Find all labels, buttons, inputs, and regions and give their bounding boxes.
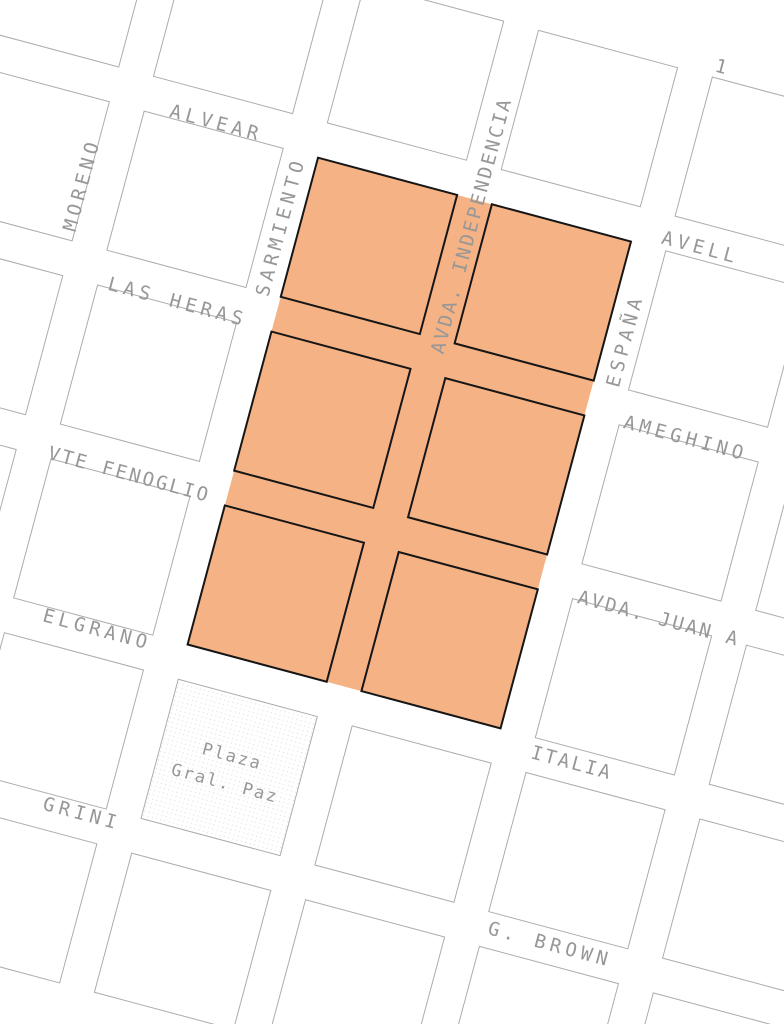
city-block [0, 0, 156, 67]
street-label-ameghino: AMEGHINO [621, 411, 750, 465]
city-block [315, 726, 491, 902]
city-block [0, 238, 63, 414]
city-block [153, 0, 329, 114]
city-block [663, 819, 784, 995]
street-label-g-brown: G. BROWN [486, 917, 615, 971]
city-block [0, 807, 97, 983]
city-block [675, 77, 784, 253]
map-page: ALVEAR AVELL 1 LAS HERAS AMEGHINO VTE FE… [0, 0, 784, 1024]
city-block [94, 853, 270, 1024]
city-block [616, 993, 784, 1024]
plaza-block [141, 679, 317, 855]
city-map-drawing: ALVEAR AVELL 1 LAS HERAS AMEGHINO VTE FE… [0, 0, 784, 1024]
street-label-las-heras: LAS HERAS [105, 273, 249, 331]
street-label-moreno: MORENO [59, 136, 105, 234]
street-label-pellegrini-partial: GRINI [41, 793, 124, 835]
street-label-avellaneda-partial: AVELL [659, 227, 742, 269]
city-block [327, 0, 503, 160]
street-label-avda-juan: AVDA. JUAN A [575, 586, 742, 651]
city-block [628, 251, 784, 427]
street-label-alvear: ALVEAR [167, 100, 265, 146]
city-block [0, 633, 143, 809]
city-block [709, 645, 784, 821]
city-block [501, 30, 677, 206]
street-label-vte-fenoglio: VTE FENOGLIO [46, 442, 213, 507]
city-block [489, 772, 665, 948]
map-grid: ALVEAR AVELL 1 LAS HERAS AMEGHINO VTE FE… [0, 0, 784, 1024]
city-block [756, 471, 784, 647]
city-block [0, 412, 16, 588]
city-block [268, 900, 444, 1024]
street-label-top-right-partial: 1 [713, 55, 734, 80]
